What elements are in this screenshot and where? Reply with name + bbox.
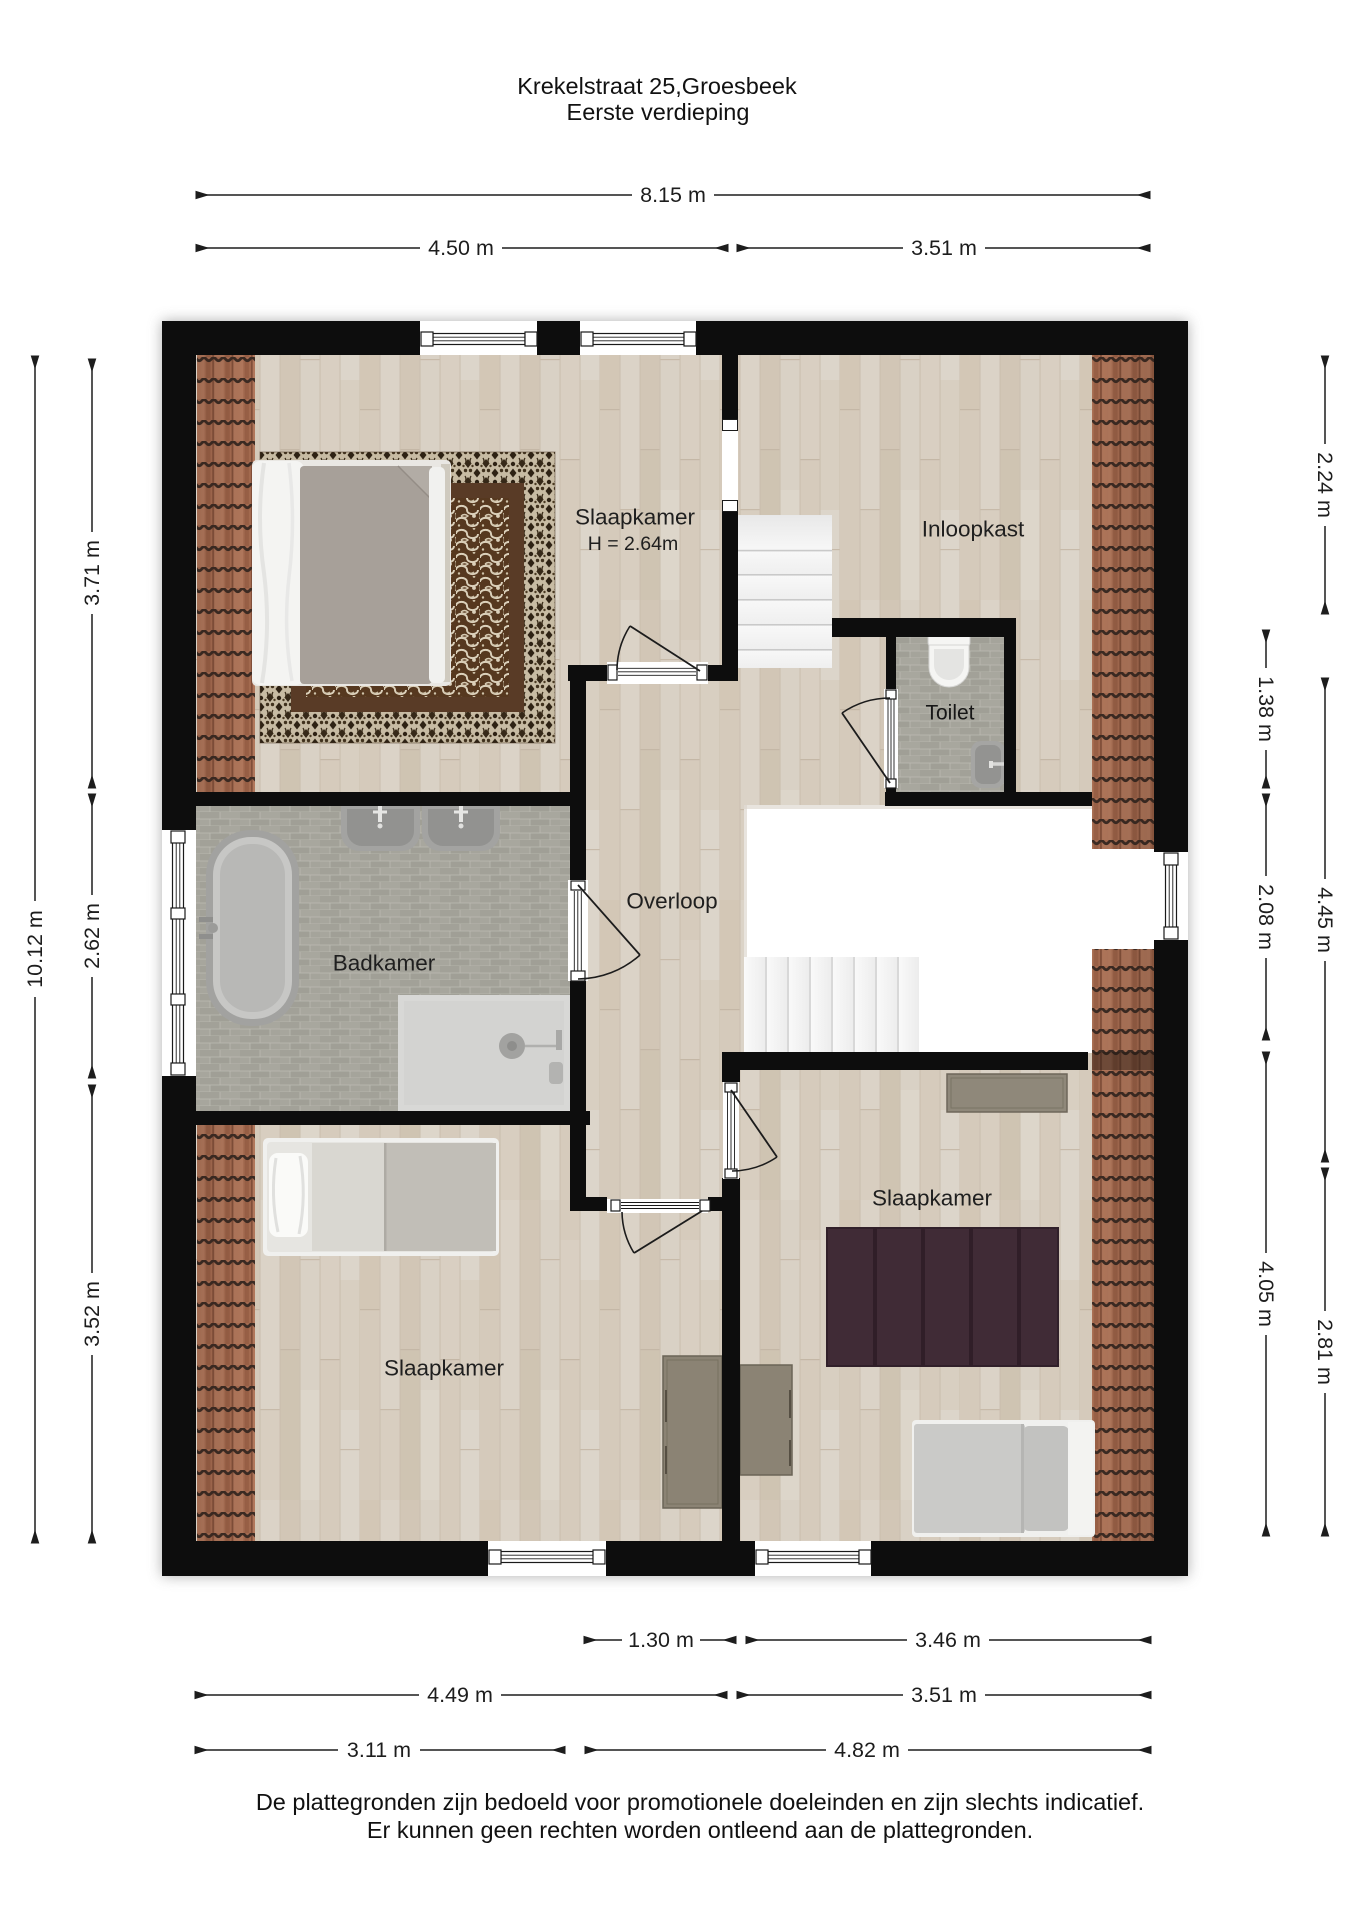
- svg-text:4.45 m: 4.45 m: [1313, 887, 1337, 953]
- svg-text:Er kunnen geen rechten worden: Er kunnen geen rechten worden ontleend a…: [367, 1817, 1033, 1843]
- svg-text:3.51 m: 3.51 m: [911, 1683, 977, 1707]
- svg-text:Toilet: Toilet: [925, 702, 974, 725]
- svg-text:Slaapkamer: Slaapkamer: [384, 1356, 505, 1381]
- svg-text:Krekelstraat 25,Groesbeek: Krekelstraat 25,Groesbeek: [517, 73, 797, 99]
- svg-text:10.12 m: 10.12 m: [23, 910, 47, 988]
- svg-text:Slaapkamer: Slaapkamer: [872, 1186, 993, 1211]
- svg-text:3.11 m: 3.11 m: [347, 1738, 411, 1762]
- svg-text:3.46 m: 3.46 m: [915, 1628, 981, 1652]
- svg-text:H = 2.64m: H = 2.64m: [588, 533, 679, 555]
- svg-text:1.30 m: 1.30 m: [628, 1628, 694, 1652]
- svg-text:De plattegronden zijn bedoeld: De plattegronden zijn bedoeld voor promo…: [256, 1789, 1144, 1815]
- svg-text:Slaapkamer: Slaapkamer: [575, 505, 696, 530]
- svg-text:2.62 m: 2.62 m: [80, 903, 104, 969]
- svg-text:4.49 m: 4.49 m: [427, 1683, 493, 1707]
- svg-text:2.08 m: 2.08 m: [1254, 884, 1278, 950]
- svg-text:Overloop: Overloop: [626, 889, 717, 914]
- svg-text:3.51 m: 3.51 m: [911, 236, 977, 260]
- svg-text:3.71 m: 3.71 m: [80, 540, 104, 606]
- svg-text:3.52 m: 3.52 m: [80, 1281, 104, 1347]
- svg-text:1.38 m: 1.38 m: [1254, 676, 1278, 742]
- svg-text:Inloopkast: Inloopkast: [922, 517, 1025, 542]
- svg-text:Badkamer: Badkamer: [333, 951, 436, 976]
- svg-text:4.50 m: 4.50 m: [428, 236, 494, 260]
- svg-text:8.15 m: 8.15 m: [640, 183, 706, 207]
- svg-text:4.82 m: 4.82 m: [834, 1738, 900, 1762]
- svg-text:4.05 m: 4.05 m: [1254, 1261, 1278, 1327]
- svg-text:Eerste verdieping: Eerste verdieping: [567, 99, 750, 125]
- svg-text:2.81 m: 2.81 m: [1313, 1319, 1337, 1385]
- svg-text:2.24 m: 2.24 m: [1313, 452, 1337, 518]
